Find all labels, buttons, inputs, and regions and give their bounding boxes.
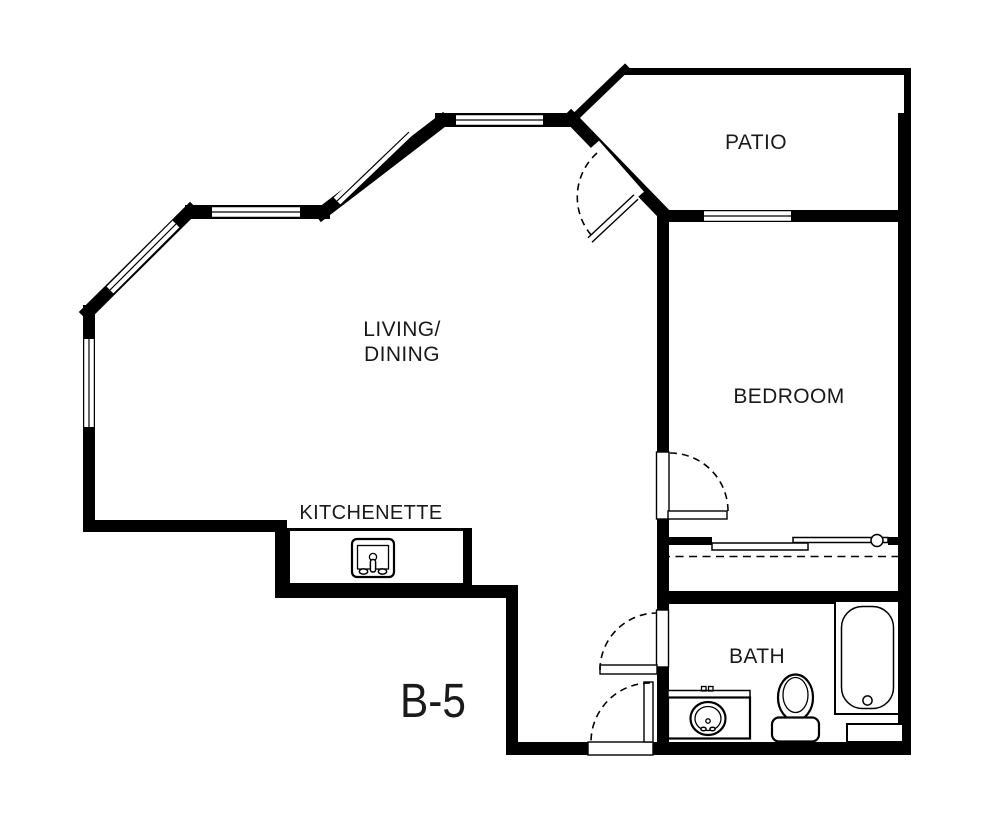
wall-hall-left [506, 585, 518, 755]
patio-rail-right [904, 71, 911, 118]
closet-panel-front [712, 543, 808, 550]
door-bath-swing-arc [600, 613, 657, 670]
door-entry-leaf [644, 682, 653, 742]
door-bath-opening [657, 610, 669, 667]
floor-plan-canvas: PATIO LIVING/ DINING BEDROOM KITCHENETTE… [0, 0, 999, 821]
exterior-walls [83, 113, 911, 755]
patio-rail-diagonal [572, 69, 625, 120]
kitchen-sink-icon [352, 539, 394, 577]
tub-drain [863, 696, 872, 705]
kitchenette-counter [289, 528, 473, 585]
closet-door-pull [871, 535, 883, 547]
door-patio [577, 146, 638, 242]
door-entry-swing-arc [591, 683, 650, 742]
door-bedroom-leaf [668, 511, 727, 519]
patio-railing [572, 68, 911, 120]
wall-bottom-left [83, 520, 287, 532]
wall-closet-left-segment [657, 537, 712, 545]
door-entry-threshold [588, 742, 653, 755]
floor-plan: PATIO LIVING/ DINING BEDROOM KITCHENETTE… [0, 0, 999, 821]
door-bedroom-swing-arc [670, 453, 728, 511]
patio-rail-top [620, 68, 911, 75]
windows [89, 120, 791, 427]
door-entry [588, 682, 653, 755]
tub-basin [842, 607, 894, 709]
room-label-patio: PATIO [725, 131, 787, 154]
counter-right-end [463, 528, 472, 585]
door-bedroom-opening [657, 452, 670, 519]
toilet-tank [772, 718, 819, 742]
room-label-bath: BATH [729, 645, 785, 668]
room-label-living-line2: DINING [364, 343, 440, 366]
wall-living-bedroom-upper [657, 210, 669, 452]
tub-ledge [847, 724, 903, 742]
vanity-sink-icon [691, 702, 726, 735]
door-bath-leaf [600, 665, 657, 674]
room-label-kitchenette: KITCHENETTE [299, 502, 442, 524]
bathtub-icon [835, 601, 903, 742]
vanity [668, 687, 750, 739]
room-label-bedroom: BEDROOM [733, 385, 844, 408]
wall-bottom-entry-left [506, 742, 588, 755]
wall-closet-right-segment [888, 537, 905, 545]
door-bedroom [657, 452, 729, 519]
room-label-living-line1: LIVING/ [363, 318, 441, 341]
wall-bottom-bath [653, 742, 911, 755]
door-bath [600, 610, 669, 674]
door-patio-leaf [588, 195, 634, 238]
unit-label: B-5 [400, 675, 466, 728]
wall-kitchen-bottom [275, 585, 518, 598]
door-patio-swing-arc [577, 153, 597, 236]
toilet-icon [772, 675, 819, 742]
